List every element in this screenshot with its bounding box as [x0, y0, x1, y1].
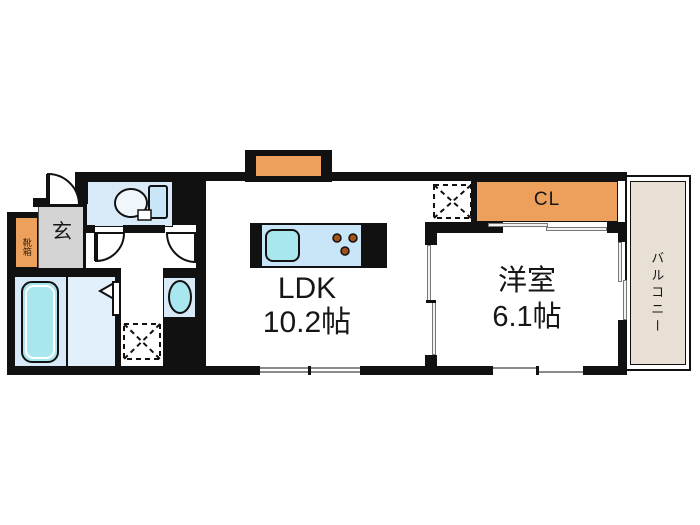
label-western-room: 洋室 6.1帖	[447, 263, 607, 335]
closet-sliding-door-right	[546, 227, 607, 231]
western-area: 6.1帖	[492, 301, 561, 333]
ldk-area: 10.2帖	[263, 306, 351, 339]
bath-room	[15, 277, 66, 366]
wall-western-north-b	[607, 222, 627, 233]
label-entrance: 玄	[51, 221, 73, 243]
western-window	[493, 366, 583, 375]
wall-vanity-top	[163, 268, 206, 277]
label-shoebox: 靴箱	[21, 230, 31, 264]
vanity-area	[163, 277, 196, 318]
label-ldk: LDK 10.2帖	[227, 272, 387, 340]
wall-bottom-c	[583, 366, 627, 375]
ldk-window	[260, 366, 360, 375]
washer-space	[124, 324, 160, 359]
balcony-window-pane-a	[618, 242, 622, 282]
kitchen-counter-left-cap	[250, 223, 260, 268]
wall-top-mid	[332, 172, 627, 181]
wall-vanity-mass	[163, 318, 206, 368]
wall-left-outer	[7, 212, 15, 375]
range-hood	[256, 156, 321, 176]
wall-bottom-b	[360, 366, 493, 375]
wall-bath-top	[7, 268, 121, 277]
ldk-door-arc	[167, 233, 196, 262]
wall-washroom-door-bottom	[115, 315, 121, 368]
floor-plan: LDK 10.2帖 洋室 6.1帖 CL バルコニー 玄 靴箱	[0, 0, 700, 525]
toilet-door-arc	[96, 233, 124, 261]
wall-washroom-door-top	[115, 277, 121, 283]
wall-partition-bottom	[425, 355, 437, 366]
kitchen-counter	[260, 223, 363, 268]
wall-bath-washroom	[66, 277, 68, 366]
wall-toilet-west	[75, 172, 88, 204]
ldk-name: LDK	[278, 272, 336, 305]
label-balcony: バルコニー	[649, 228, 663, 358]
refrigerator-space	[434, 185, 471, 218]
wall-toilet-south-a	[86, 225, 95, 233]
label-closet: CL	[476, 190, 618, 211]
balcony-window-pane-b	[623, 280, 627, 320]
wall-toilet-south-b	[123, 225, 165, 233]
washroom	[68, 277, 115, 366]
wall-partition-top	[425, 222, 437, 245]
partition-sliding-door-upper	[427, 245, 431, 303]
partition-tick	[426, 300, 436, 303]
wall-toilet-east-mass	[173, 172, 206, 225]
closet-sliding-door-left	[488, 223, 548, 227]
wall-top-left	[75, 172, 245, 181]
wall-balcony-bottom	[618, 320, 627, 366]
wall-shoebox-cap	[15, 212, 38, 217]
wall-entrance-side-line	[83, 204, 86, 268]
toilet-room	[86, 181, 173, 227]
kitchen-counter-right-cap	[363, 223, 387, 268]
wall-bottom-a	[7, 366, 260, 375]
wall-hall-corner	[196, 225, 206, 233]
wall-balcony-top	[618, 233, 627, 242]
western-name: 洋室	[498, 265, 556, 297]
wall-entrance-top-line	[38, 204, 84, 207]
partition-sliding-door-lower	[432, 301, 436, 355]
